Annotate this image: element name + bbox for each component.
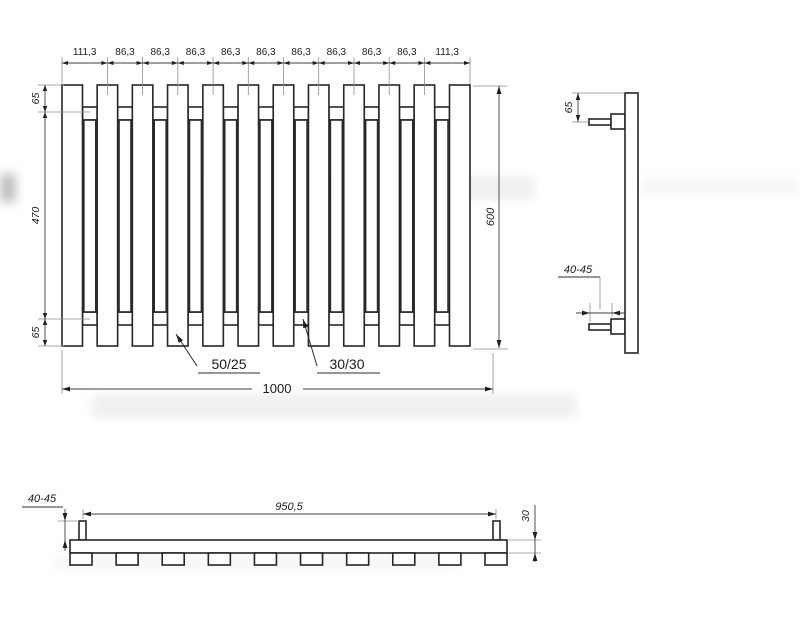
wide-bar <box>379 85 400 346</box>
narrow-bar <box>401 120 413 312</box>
narrow-bar <box>154 120 166 312</box>
bottom-dimension: 1000 <box>62 350 493 396</box>
wide-bar <box>344 85 365 346</box>
dim-left-65-bottom: 65 <box>30 327 42 339</box>
dim-arrow <box>354 61 360 65</box>
dim-arrow <box>313 61 319 65</box>
collector-segment-top <box>294 107 309 120</box>
dim-arrow <box>424 61 430 65</box>
wide-bar <box>450 85 471 346</box>
dim-chain-label: 86,3 <box>327 47 347 58</box>
dim-chain-label: 111,3 <box>73 47 97 58</box>
bottom-square <box>485 553 507 565</box>
dim-chain-label: 86,3 <box>362 47 382 58</box>
collector-segment-top <box>118 107 133 120</box>
bottom-square <box>301 553 323 565</box>
dim-chain-label: 86,3 <box>397 47 417 58</box>
dim-side-65: 65 <box>563 102 575 114</box>
bottom-square <box>393 553 415 565</box>
bottom-square <box>254 553 276 565</box>
bottom-spacing-dimension: 950,5 <box>83 501 496 519</box>
dim-arrow <box>383 61 389 65</box>
watermark-band <box>640 178 800 196</box>
dim-arrow <box>284 61 290 65</box>
bottom-square <box>70 553 92 565</box>
dim-chain-label: 86,3 <box>115 47 135 58</box>
dim-arrow <box>107 61 113 65</box>
wide-bar <box>414 85 435 346</box>
top-dimension-chain: 111,386,386,386,386,386,386,386,386,386,… <box>62 47 470 95</box>
wide-bar <box>132 85 153 346</box>
label-narrow-profile: 30/30 <box>329 356 364 372</box>
narrow-bar <box>119 120 131 312</box>
dim-chain-label: 86,3 <box>291 47 311 58</box>
wide-bar <box>168 85 189 346</box>
technical-drawing: 111,386,386,386,386,386,386,386,386,386,… <box>0 0 800 637</box>
collector-segment-bottom <box>294 312 309 325</box>
dim-arrow <box>278 61 284 65</box>
collector-segment-bottom <box>329 312 344 325</box>
collector-segment-bottom <box>259 312 274 325</box>
collector-segment-bottom <box>223 312 238 325</box>
narrow-bar <box>330 120 342 312</box>
dim-chain-label: 86,3 <box>150 47 170 58</box>
dim-bottom-40-45: 40-45 <box>28 493 57 505</box>
right-connection-stub <box>493 521 500 540</box>
left-connection-stub <box>79 521 86 540</box>
wide-bar <box>238 85 258 346</box>
collector-segment-bottom <box>435 312 450 325</box>
bottom-square <box>439 553 461 565</box>
dim-width-1000: 1000 <box>263 381 292 396</box>
bottom-square <box>208 553 230 565</box>
dim-arrow <box>207 61 213 65</box>
collector-segment-bottom <box>153 312 168 325</box>
wide-bar <box>308 85 329 346</box>
dim-950-5: 950,5 <box>275 501 303 513</box>
collector-segment-top <box>329 107 344 120</box>
dim-arrow <box>248 61 254 65</box>
collector-segment-top <box>364 107 379 120</box>
side-view: 65 40-45 <box>558 93 638 353</box>
narrow-bar <box>225 120 237 312</box>
dim-arrow <box>242 61 248 65</box>
collector-segment-top <box>153 107 168 120</box>
narrow-bar <box>84 120 96 312</box>
front-view: 111,386,386,386,386,386,386,386,386,386,… <box>30 47 508 396</box>
dim-chain-label: 86,3 <box>186 47 206 58</box>
dim-arrow <box>389 61 395 65</box>
collector-segment-top <box>83 107 98 120</box>
dim-arrow <box>464 61 470 65</box>
watermark-band <box>92 394 577 418</box>
collector-segment-bottom <box>399 312 414 325</box>
side-profile <box>625 93 638 353</box>
narrow-bar <box>436 120 448 312</box>
dim-left-470: 470 <box>30 207 42 225</box>
dim-side-40-45: 40-45 <box>564 264 593 276</box>
dim-height-600: 600 <box>485 207 497 226</box>
bottom-connection-block <box>611 319 625 334</box>
label-wide-profile: 50/25 <box>211 356 246 372</box>
dim-arrow <box>143 61 149 65</box>
bottom-square <box>162 553 184 565</box>
collector-segment-top <box>435 107 450 120</box>
watermark-blob <box>0 174 16 202</box>
dim-arrow <box>101 61 107 65</box>
collector-segment-top <box>188 107 203 120</box>
dim-arrow <box>172 61 178 65</box>
collector-segment-top <box>259 107 274 120</box>
dim-arrow <box>137 61 143 65</box>
top-connection-pipe <box>589 119 611 125</box>
collector-bar <box>70 540 507 553</box>
dim-arrow <box>418 61 424 65</box>
narrow-bar <box>366 120 378 312</box>
narrow-bar <box>189 120 201 312</box>
bottom-square <box>347 553 369 565</box>
dim-left-65-top: 65 <box>30 93 42 105</box>
dim-chain-label: 111,3 <box>435 47 459 58</box>
narrow-bar <box>295 120 307 312</box>
dim-arrow <box>178 61 184 65</box>
bottom-connection-pipe <box>589 324 611 330</box>
collector-segment-bottom <box>188 312 203 325</box>
dim-depth-30: 30 <box>520 510 532 522</box>
dim-arrow <box>62 61 68 65</box>
collector-segment-bottom <box>83 312 98 325</box>
collector-segment-bottom <box>364 312 379 325</box>
bottom-depth-dimension: 30 <box>509 505 541 562</box>
side-connection-dimension: 40-45 <box>558 264 626 322</box>
drawing-canvas: 111,386,386,386,386,386,386,386,386,386,… <box>0 0 800 637</box>
bottom-square <box>116 553 138 565</box>
top-connection-block <box>611 114 625 129</box>
front-bars <box>62 85 470 346</box>
wide-bar <box>97 85 118 346</box>
wide-bar <box>273 85 294 346</box>
collector-segment-top <box>399 107 414 120</box>
narrow-bar <box>260 120 272 312</box>
collector-segment-top <box>223 107 238 120</box>
right-dimension: 600 <box>473 86 508 349</box>
wide-bar <box>62 85 83 346</box>
dim-arrow <box>319 61 325 65</box>
dim-chain-label: 86,3 <box>221 47 241 58</box>
dim-chain-label: 86,3 <box>256 47 276 58</box>
collector-segment-bottom <box>118 312 133 325</box>
dim-arrow <box>348 61 354 65</box>
dim-arrow <box>213 61 219 65</box>
wide-bar <box>203 85 224 346</box>
